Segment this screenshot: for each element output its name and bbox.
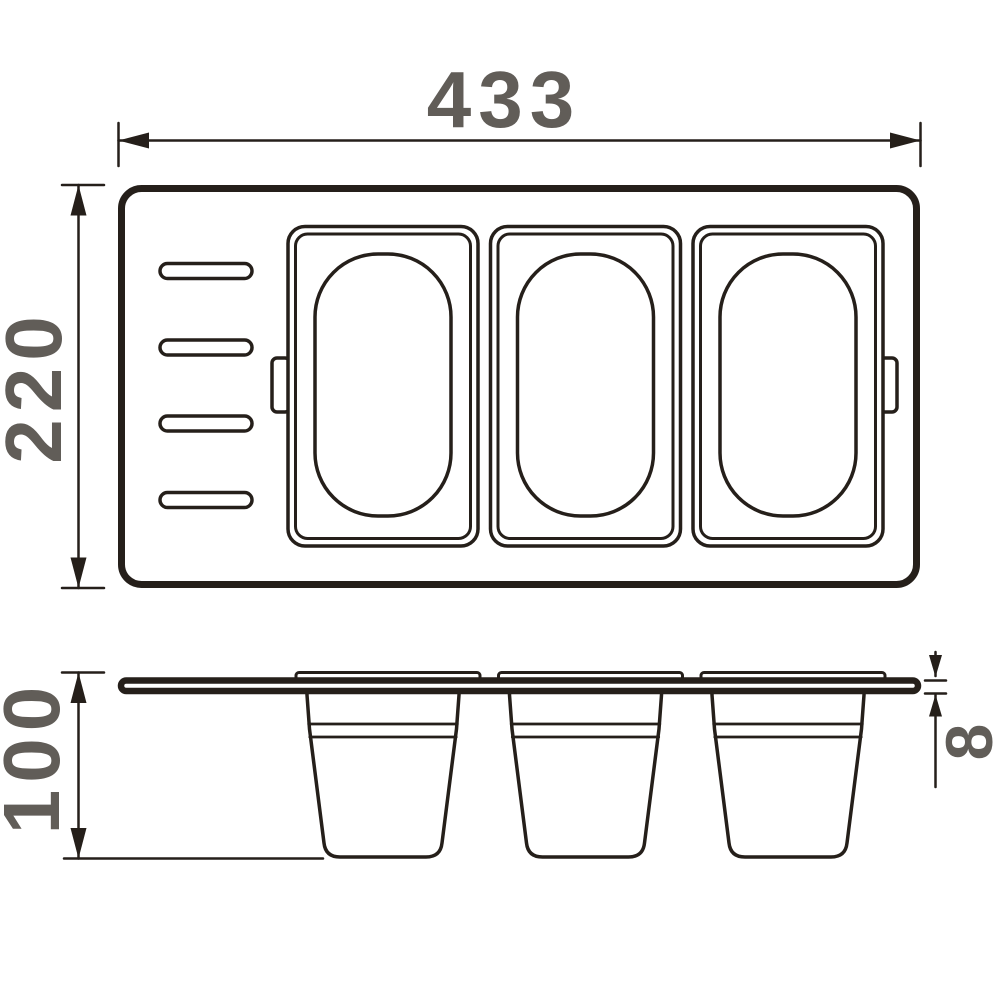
dimension-thickness-label: 8 <box>932 724 1000 761</box>
dimension-width-label: 433 <box>427 55 581 144</box>
container-top-view-2 <box>491 227 681 547</box>
side-view <box>121 673 918 858</box>
arrowhead-down <box>929 655 942 677</box>
container-side-view-1 <box>307 689 459 857</box>
tray-profile-side <box>121 681 918 692</box>
technical-drawing-page: 433 220 100 8 <box>0 0 1000 998</box>
arrowhead-right <box>890 133 921 149</box>
container-top-view-1 <box>288 227 478 547</box>
bucket-profile <box>712 689 864 857</box>
knife-slot <box>160 264 252 279</box>
container-side-view-3 <box>712 689 864 857</box>
container-top-view-3 <box>693 227 883 547</box>
container-side-view-2 <box>509 689 661 857</box>
knife-slot <box>160 493 252 508</box>
dimension-overall-depth: 220 <box>0 185 104 588</box>
arrowhead-up <box>929 695 942 717</box>
bucket-profile <box>307 689 459 857</box>
dimension-depth-label: 220 <box>0 309 78 463</box>
knife-slot <box>160 416 252 431</box>
dimension-height-label: 100 <box>0 680 76 834</box>
arrowhead-bottom <box>71 558 87 589</box>
dimension-tray-thickness: 8 <box>925 652 1000 787</box>
arrowhead-left <box>119 133 150 149</box>
organizer-technical-drawing: 433 220 100 8 <box>0 0 1000 998</box>
top-view <box>122 189 917 585</box>
bucket-profile <box>509 689 661 857</box>
dimension-container-depth: 100 <box>0 673 323 859</box>
knife-slot <box>160 340 252 355</box>
dimension-overall-width: 433 <box>119 55 921 166</box>
arrowhead-top <box>71 185 87 216</box>
